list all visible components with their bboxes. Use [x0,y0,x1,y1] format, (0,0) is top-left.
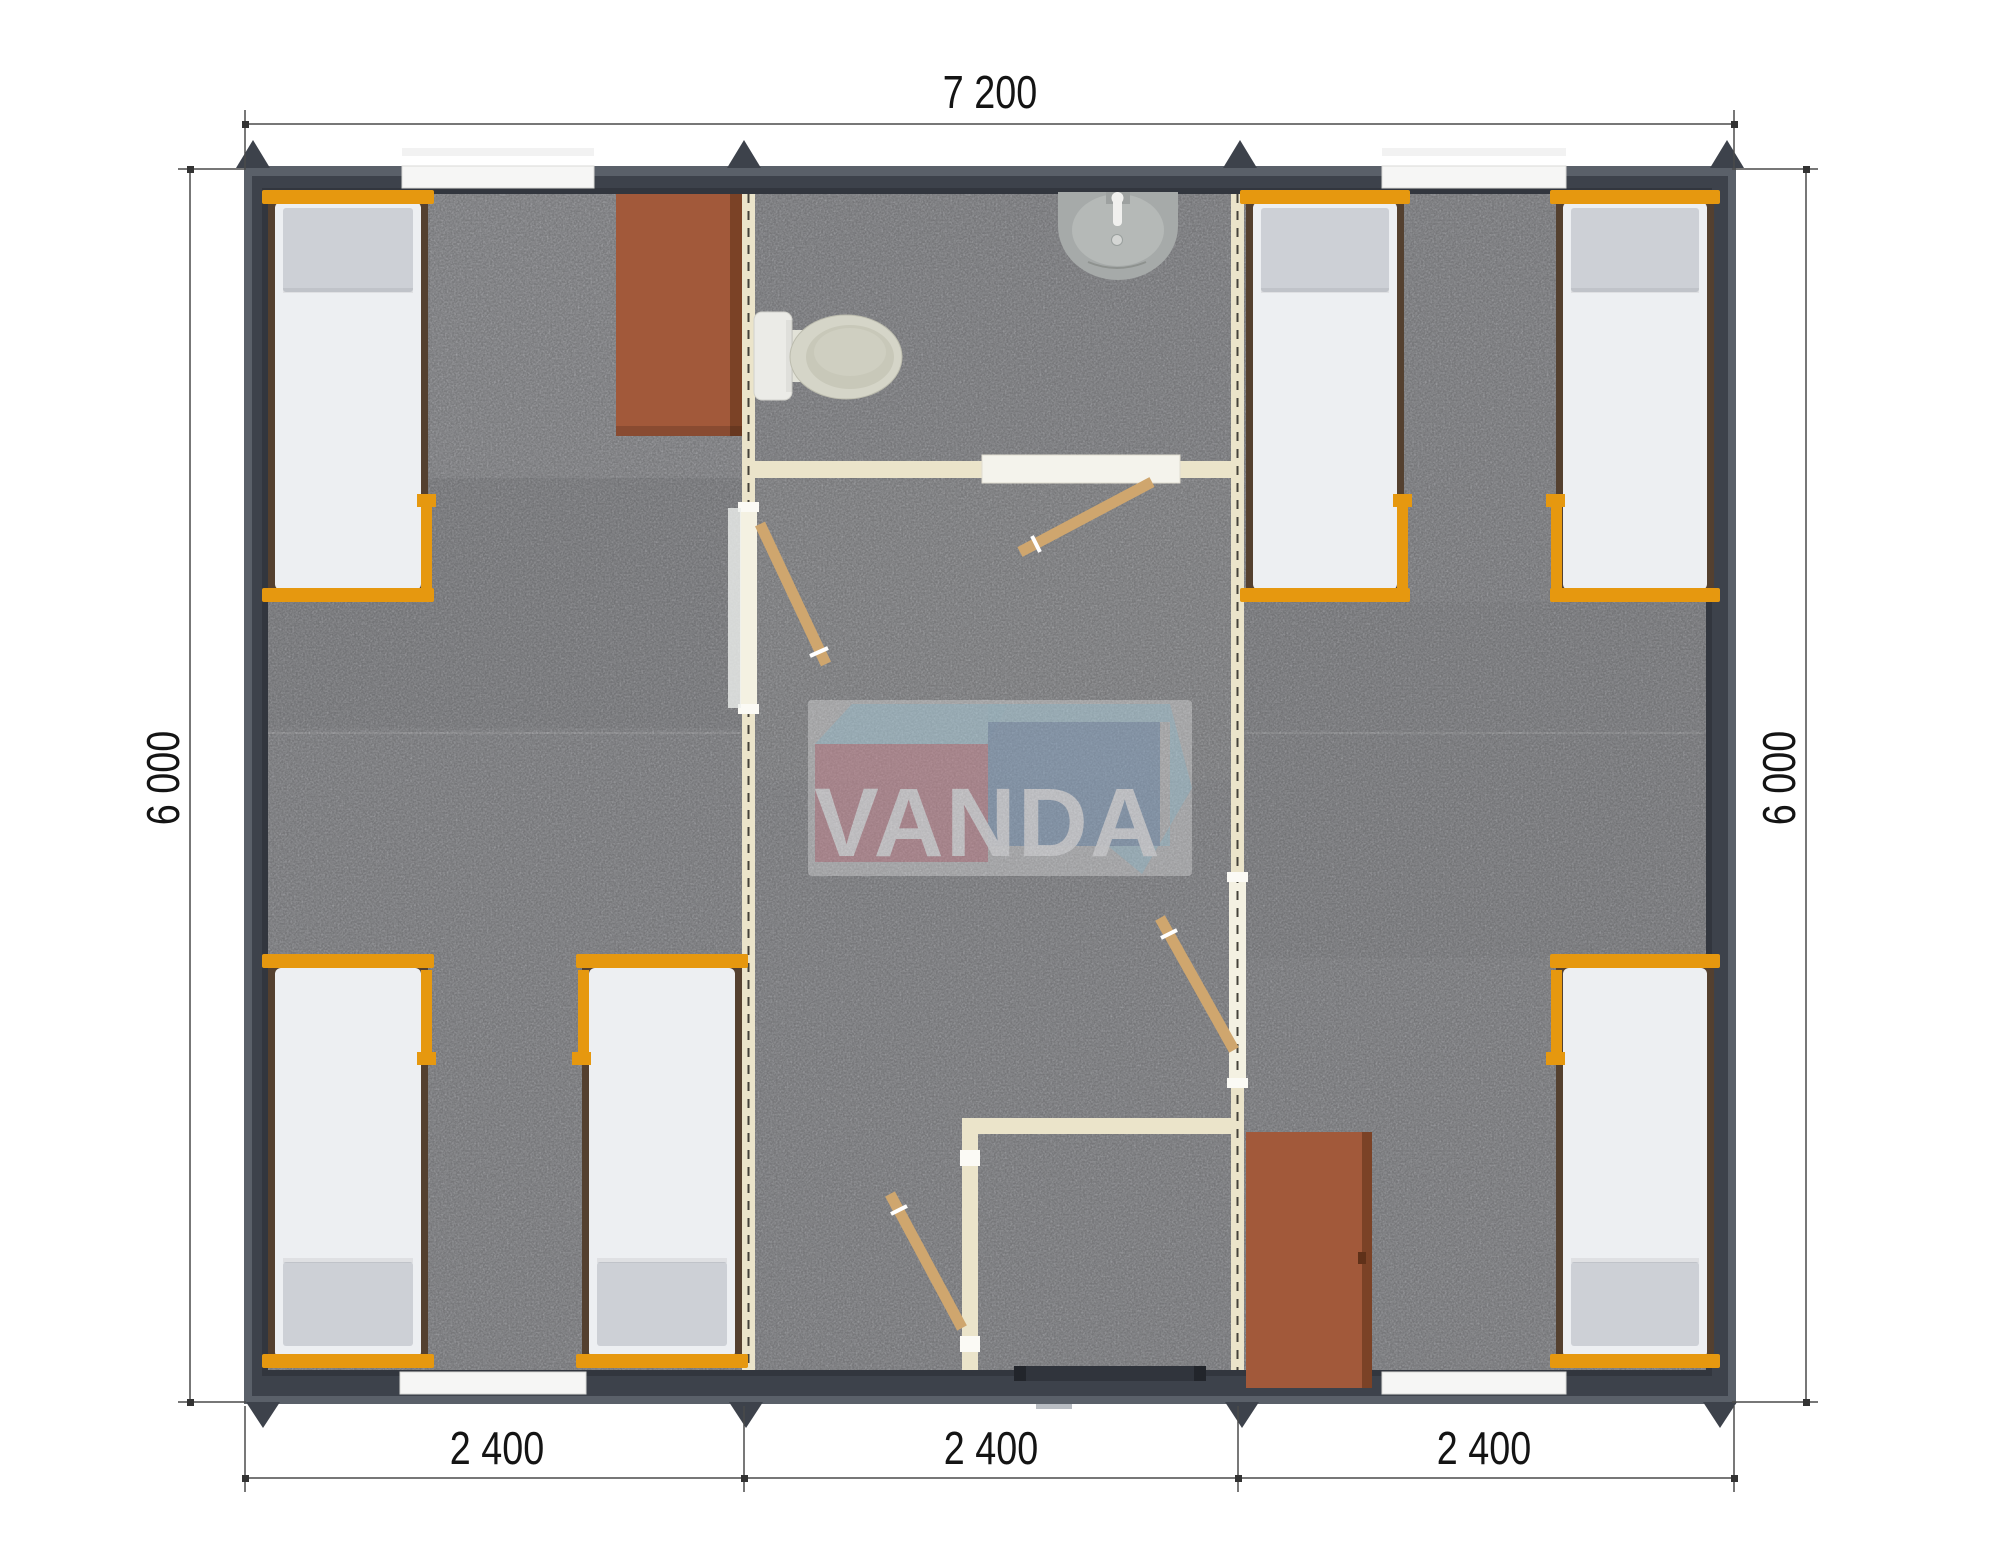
window-top-right-inner [1382,166,1566,188]
toilet [754,312,902,400]
floor-plan-drawing: VANDA [0,0,2000,1566]
window-top-left [402,148,594,156]
dimension-label-right-height: 6 000 [1756,731,1802,825]
window-bottom-left [400,1372,586,1394]
logo-watermark: VANDA [808,700,1192,877]
bed-right-top-1 [1240,190,1412,602]
logo-text: VANDA [814,768,1162,877]
bed-left-top [262,190,436,602]
bed-right-top-2 [1546,190,1720,602]
bed-left-bottom-1 [262,954,436,1368]
dimension-label-module-1: 2 400 [450,1425,544,1471]
window-bottom-right [1382,1372,1566,1394]
entrance-step [1036,1404,1072,1409]
bed-right-bottom [1546,954,1720,1368]
dimension-label-left-height: 6 000 [140,731,186,825]
bed-left-bottom-2 [572,954,748,1368]
dimension-label-module-2: 2 400 [944,1425,1038,1471]
dimension-label-top-width: 7 200 [943,69,1037,115]
cabinet [1246,1132,1372,1388]
floor-plan-page: VANDA 7 200 6 000 6 000 2 400 2 400 2 40… [0,0,2000,1566]
desk [616,194,742,436]
window-top-left-inner [402,166,594,188]
window-top-right [1382,148,1566,156]
dimension-label-module-3: 2 400 [1437,1425,1531,1471]
